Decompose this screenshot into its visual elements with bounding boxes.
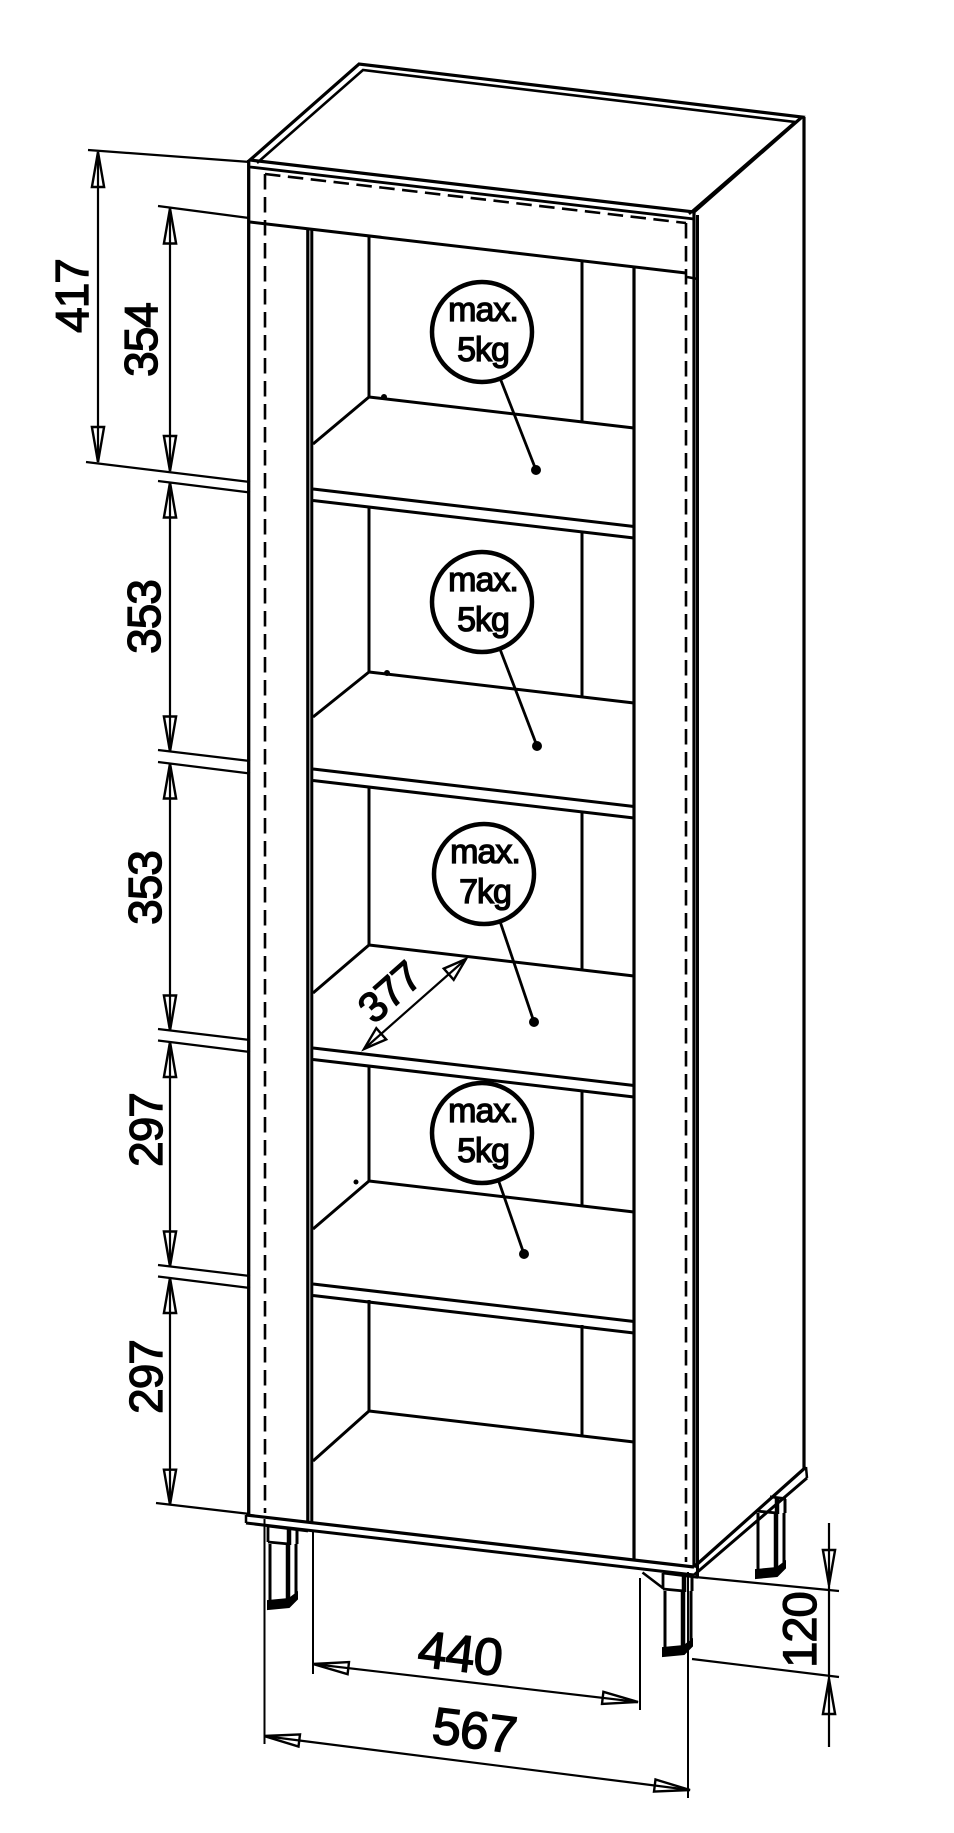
svg-text:5kg: 5kg (457, 1132, 509, 1170)
svg-text:353: 353 (119, 851, 171, 925)
svg-text:440: 440 (415, 1620, 505, 1687)
svg-text:5kg: 5kg (457, 601, 509, 639)
svg-text:max.: max. (448, 291, 518, 329)
svg-text:353: 353 (118, 580, 170, 654)
svg-text:354: 354 (115, 303, 167, 377)
svg-text:297: 297 (120, 1340, 172, 1414)
svg-text:max.: max. (450, 833, 520, 871)
svg-text:max.: max. (448, 1092, 518, 1130)
svg-text:max.: max. (448, 561, 518, 599)
svg-text:297: 297 (120, 1093, 172, 1167)
svg-text:120: 120 (773, 1592, 826, 1667)
svg-text:417: 417 (46, 259, 98, 333)
svg-text:5kg: 5kg (457, 331, 509, 369)
svg-text:567: 567 (429, 1697, 519, 1765)
svg-text:7kg: 7kg (459, 873, 511, 911)
